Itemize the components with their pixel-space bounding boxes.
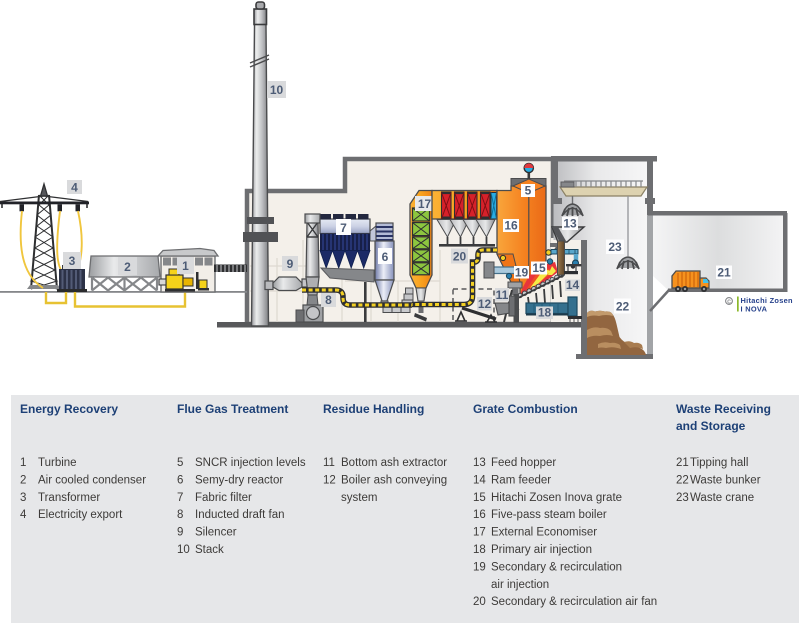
svg-text:22: 22 bbox=[616, 300, 630, 314]
svg-text:Five-pass steam boiler: Five-pass steam boiler bbox=[491, 509, 607, 521]
svg-text:9: 9 bbox=[177, 527, 183, 539]
svg-text:Residue Handling: Residue Handling bbox=[323, 402, 424, 416]
svg-text:6: 6 bbox=[382, 250, 389, 264]
svg-text:19: 19 bbox=[515, 266, 529, 280]
svg-text:Primary air injection: Primary air injection bbox=[491, 544, 592, 556]
svg-text:9: 9 bbox=[287, 257, 294, 271]
svg-text:Hitachi Zosen Inova grate: Hitachi Zosen Inova grate bbox=[491, 492, 622, 504]
svg-text:19: 19 bbox=[473, 561, 486, 573]
svg-text:13: 13 bbox=[563, 217, 577, 231]
svg-text:SNCR injection levels: SNCR injection levels bbox=[195, 457, 306, 469]
svg-text:5: 5 bbox=[525, 184, 532, 198]
svg-text:Electricity export: Electricity export bbox=[38, 509, 123, 521]
svg-text:Boiler ash conveying: Boiler ash conveying bbox=[341, 474, 447, 486]
svg-text:Tipping hall: Tipping hall bbox=[690, 457, 748, 469]
svg-text:Inducted draft fan: Inducted draft fan bbox=[195, 509, 285, 521]
svg-text:18: 18 bbox=[538, 306, 552, 320]
svg-text:1: 1 bbox=[182, 259, 189, 273]
svg-text:I NOVA: I NOVA bbox=[741, 305, 768, 314]
svg-text:14: 14 bbox=[566, 278, 580, 292]
svg-text:12: 12 bbox=[478, 297, 492, 311]
svg-text:5: 5 bbox=[177, 457, 183, 469]
svg-text:4: 4 bbox=[20, 509, 27, 521]
svg-text:8: 8 bbox=[325, 293, 332, 307]
svg-text:Bottom ash extractor: Bottom ash extractor bbox=[341, 457, 447, 469]
svg-text:and Storage: and Storage bbox=[676, 419, 746, 433]
svg-text:Feed hopper: Feed hopper bbox=[491, 457, 556, 469]
svg-text:8: 8 bbox=[177, 509, 183, 521]
svg-text:2: 2 bbox=[124, 260, 131, 274]
svg-text:10: 10 bbox=[270, 83, 284, 97]
svg-text:Fabric filter: Fabric filter bbox=[195, 492, 252, 504]
svg-text:Waste bunker: Waste bunker bbox=[690, 474, 761, 486]
svg-text:Flue Gas Treatment: Flue Gas Treatment bbox=[177, 402, 288, 416]
svg-text:system: system bbox=[341, 492, 377, 504]
svg-text:17: 17 bbox=[473, 527, 486, 539]
svg-text:air injection: air injection bbox=[491, 579, 549, 591]
svg-text:Ram feeder: Ram feeder bbox=[491, 474, 551, 486]
svg-text:1: 1 bbox=[20, 457, 26, 469]
svg-text:20: 20 bbox=[453, 250, 467, 264]
svg-text:Secondary & recirculation: Secondary & recirculation bbox=[491, 561, 622, 573]
svg-text:18: 18 bbox=[473, 544, 486, 556]
svg-text:Air cooled condenser: Air cooled condenser bbox=[38, 474, 146, 486]
svg-text:3: 3 bbox=[69, 254, 76, 268]
svg-text:12: 12 bbox=[323, 474, 336, 486]
svg-text:23: 23 bbox=[676, 492, 689, 504]
svg-text:15: 15 bbox=[532, 261, 546, 275]
svg-text:22: 22 bbox=[676, 474, 689, 486]
svg-text:2: 2 bbox=[20, 474, 26, 486]
svg-text:11: 11 bbox=[323, 457, 335, 469]
svg-text:Stack: Stack bbox=[195, 544, 224, 556]
svg-text:Energy Recovery: Energy Recovery bbox=[20, 402, 118, 416]
svg-text:7: 7 bbox=[177, 492, 183, 504]
svg-text:15: 15 bbox=[473, 492, 486, 504]
svg-text:11: 11 bbox=[496, 288, 509, 302]
svg-text:16: 16 bbox=[473, 509, 486, 521]
svg-text:Silencer: Silencer bbox=[195, 527, 237, 539]
svg-text:Secondary & recirculation air: Secondary & recirculation air fan bbox=[491, 596, 657, 608]
svg-text:14: 14 bbox=[473, 474, 486, 486]
svg-text:17: 17 bbox=[418, 197, 432, 211]
svg-text:3: 3 bbox=[20, 492, 26, 504]
svg-text:Semy-dry reactor: Semy-dry reactor bbox=[195, 474, 283, 486]
svg-text:21: 21 bbox=[717, 266, 731, 280]
svg-text:Waste crane: Waste crane bbox=[690, 492, 754, 504]
svg-text:13: 13 bbox=[473, 457, 486, 469]
svg-text:6: 6 bbox=[177, 474, 183, 486]
svg-text:7: 7 bbox=[340, 221, 347, 235]
svg-text:Grate Combustion: Grate Combustion bbox=[473, 402, 578, 416]
svg-text:External Economiser: External Economiser bbox=[491, 527, 597, 539]
svg-text:C: C bbox=[727, 300, 731, 306]
svg-text:16: 16 bbox=[504, 219, 518, 233]
svg-text:4: 4 bbox=[71, 181, 78, 195]
svg-text:Turbine: Turbine bbox=[38, 457, 77, 469]
svg-text:21: 21 bbox=[676, 457, 689, 469]
svg-text:20: 20 bbox=[473, 596, 486, 608]
svg-text:Transformer: Transformer bbox=[38, 492, 100, 504]
svg-text:10: 10 bbox=[177, 544, 190, 556]
svg-text:Waste Receiving: Waste Receiving bbox=[676, 402, 771, 416]
svg-text:23: 23 bbox=[608, 240, 622, 254]
